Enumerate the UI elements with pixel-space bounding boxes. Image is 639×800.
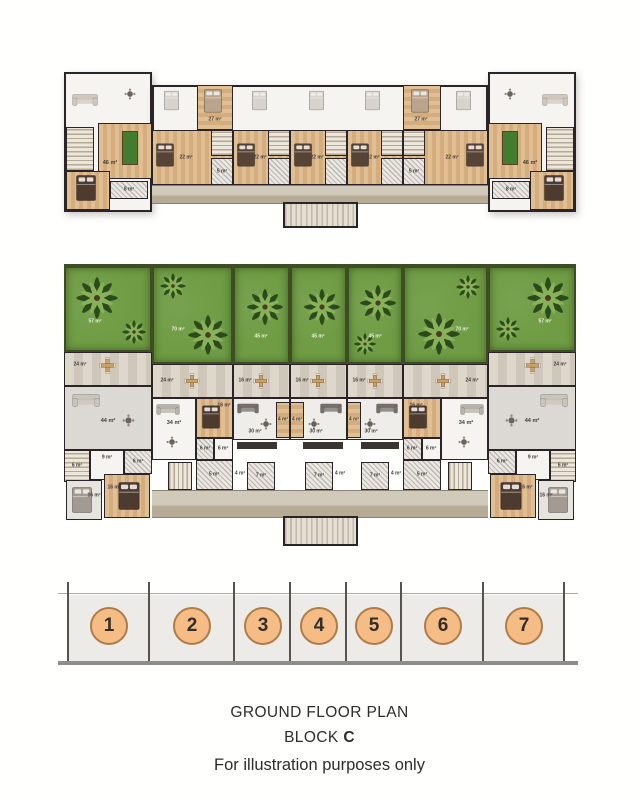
bed-icon: [204, 89, 222, 113]
kitchen-counter: [237, 442, 277, 449]
stairs-icon: [381, 130, 403, 156]
unit-number-badge-7: 7: [505, 607, 543, 645]
garden-7: [488, 264, 576, 352]
stairs-area-label: 6 m²: [72, 464, 82, 469]
room-area-label: 22 m²: [179, 156, 192, 161]
deck-area-label: 4 m²: [278, 418, 288, 423]
garden-area-label: 57 m²: [88, 320, 101, 325]
terrace-area-label: 16 m²: [295, 379, 308, 384]
bedroom-area-label: 16 m²: [107, 486, 120, 491]
dining-table-icon: [458, 436, 470, 448]
stairs-icon: [325, 130, 347, 156]
palm-tree-icon: [455, 274, 481, 300]
bath-area-label: 7 m²: [256, 474, 266, 479]
key-divider: [289, 582, 291, 661]
sofa-icon: [237, 403, 259, 414]
outdoor-table-icon: [99, 357, 116, 374]
wc-area-label: 6 m²: [200, 447, 210, 452]
upper-entrance-stairs: [283, 202, 358, 228]
palm-tree-icon: [186, 313, 230, 357]
dining-table-icon: [505, 414, 518, 427]
bed-icon: [466, 142, 484, 168]
palm-tree-icon: [495, 316, 521, 342]
kitchen-counter: [303, 442, 343, 449]
terrace-area-label: 16 m²: [352, 379, 365, 384]
key-divider: [563, 582, 565, 661]
bedroom-area-label: 16 m²: [519, 486, 532, 491]
floor-plan-sheet: 46 m² 8 m² 27 m² 22 m² 5 m² 22 m² 22 m²: [0, 0, 639, 800]
bed-icon: [156, 142, 174, 168]
sofa-icon: [156, 404, 180, 415]
terrace-area-label: 24 m²: [73, 363, 86, 368]
garden-area-label: 70 m²: [455, 328, 468, 333]
bed-icon: [365, 90, 380, 111]
deck-area-label: 4 m²: [292, 418, 302, 423]
living-area-label: 30 m²: [248, 430, 261, 435]
terrace-area-label: 24 m²: [465, 379, 478, 384]
bed-icon: [252, 90, 267, 111]
hall-area-label: 9 m²: [102, 456, 112, 461]
key-divider: [67, 582, 69, 661]
living-area-label: 34 m²: [167, 421, 182, 427]
outdoor-table-icon: [435, 373, 451, 389]
hall-area-label: 4 m²: [391, 472, 401, 477]
bath-area-label: 5 m²: [209, 473, 219, 478]
stairs-icon: [66, 127, 94, 171]
key-divider: [400, 582, 402, 661]
upper-floor-plan: 46 m² 8 m² 27 m² 22 m² 5 m² 22 m² 22 m²: [64, 12, 576, 230]
outdoor-table-icon: [253, 373, 269, 389]
unit-number-badge-6: 6: [424, 607, 462, 645]
upper-bath-3: [268, 158, 290, 185]
bedroom-area-label: 16 m²: [87, 494, 100, 499]
pool-table: [502, 131, 518, 165]
bath-area-label: 7 m²: [370, 474, 380, 479]
room-area-label: 27 m²: [208, 118, 221, 123]
unit-number-badge-2: 2: [173, 607, 211, 645]
sofa-icon: [542, 94, 568, 106]
bed-icon: [309, 90, 324, 111]
block-label: BLOCK C: [0, 729, 639, 747]
ground-floor-plan: 57 m² 70 m² 45 m² 45 m² 45 m² 70 m² 57 m: [64, 264, 576, 546]
room-area-label: 22 m²: [310, 156, 323, 161]
stairs-icon: [268, 130, 290, 156]
room-area-label: 46 m²: [103, 161, 118, 167]
ground-corridor: [152, 490, 488, 518]
room-area-label: 22 m²: [253, 156, 266, 161]
garden-5: [347, 264, 403, 364]
bedroom-area-label: 16 m²: [217, 404, 230, 409]
garden-4: [290, 264, 347, 364]
palm-tree-icon: [416, 311, 462, 357]
outdoor-table-icon: [367, 373, 383, 389]
disclaimer-text: For illustration purposes only: [0, 756, 639, 775]
living-area-label: 34 m²: [459, 421, 474, 427]
stairs-icon: [168, 462, 192, 490]
room-area-label: 8 m²: [124, 188, 134, 193]
garden-1: [64, 264, 152, 352]
key-bottom-line: [58, 661, 578, 665]
upper-bath-5: [381, 158, 403, 185]
bedroom-area-label: 16 m²: [539, 494, 552, 499]
bed-icon: [237, 142, 255, 168]
palm-tree-icon: [358, 283, 398, 323]
terrace-area-label: 24 m²: [160, 379, 173, 384]
bed-icon: [548, 486, 568, 514]
stairs-icon: [211, 130, 233, 156]
bath-area-label: 5 m²: [417, 473, 427, 478]
dining-table-icon: [504, 88, 516, 100]
living-area-label: 30 m²: [364, 430, 377, 435]
hall-area-label: 6 m²: [426, 447, 436, 452]
dining-table-icon: [260, 418, 272, 430]
unit-number-badge-5: 5: [355, 607, 393, 645]
room-area-label: 8 m²: [506, 188, 516, 193]
key-divider: [233, 582, 235, 661]
palm-tree-icon: [525, 275, 571, 321]
hall-area-label: 9 m²: [528, 456, 538, 461]
dining-table-icon: [166, 436, 178, 448]
upper-bath-4: [325, 158, 347, 185]
key-divider: [148, 582, 150, 661]
room-area-label: 5 m²: [217, 170, 227, 175]
garden-area-label: 45 m²: [311, 335, 324, 340]
palm-tree-icon: [159, 272, 187, 300]
wc-area-label: 6 m²: [407, 447, 417, 452]
sofa-icon: [72, 94, 98, 106]
room-area-label: 46 m²: [523, 161, 538, 167]
terrace-area-label: 24 m²: [553, 363, 566, 368]
deck-area-label: 4 m²: [349, 418, 359, 423]
dining-table-icon: [122, 414, 135, 427]
garden-3: [233, 264, 290, 364]
unit-number-badge-3: 3: [244, 607, 282, 645]
hall-area-label: 4 m²: [335, 472, 345, 477]
dining-table-icon: [124, 88, 136, 100]
room-area-label: 22 m²: [366, 156, 379, 161]
ground-entrance-stairs: [283, 516, 358, 546]
garden-2: [152, 264, 233, 364]
stairs-icon: [448, 462, 472, 490]
key-divider: [345, 582, 347, 661]
bed-icon: [294, 142, 312, 168]
terrace-area-label: 16 m²: [238, 379, 251, 384]
living-area-label: 44 m²: [525, 419, 540, 425]
bed-icon: [72, 486, 92, 514]
bed-icon: [544, 175, 564, 201]
hall-area-label: 4 m²: [235, 472, 245, 477]
bath-area-label: 7 m²: [314, 474, 324, 479]
block-letter: C: [343, 729, 355, 746]
garden-area-label: 57 m²: [538, 320, 551, 325]
bath-area-label: 6 m²: [133, 460, 143, 465]
bedroom-area-label: 16 m²: [409, 404, 422, 409]
room-area-label: 27 m²: [414, 118, 427, 123]
unit-key-strip: 1 2 3 4 5 6 7: [58, 582, 578, 668]
palm-tree-icon: [74, 275, 120, 321]
living-area-label: 44 m²: [101, 419, 116, 425]
sofa-icon: [72, 394, 100, 407]
bed-icon: [118, 482, 140, 510]
garden-area-label: 45 m²: [254, 335, 267, 340]
bed-icon: [411, 89, 429, 113]
stairs-area-label: 6 m²: [558, 464, 568, 469]
block-word: BLOCK: [284, 729, 339, 746]
bed-icon: [456, 90, 471, 111]
plan-title: GROUND FLOOR PLAN: [0, 704, 639, 722]
stairs-icon: [546, 127, 574, 171]
palm-tree-icon: [121, 319, 147, 345]
unit-number-badge-1: 1: [90, 607, 128, 645]
palm-tree-icon: [245, 287, 285, 327]
kitchen-counter: [361, 442, 399, 449]
room-area-label: 22 m²: [445, 156, 458, 161]
unit-number-badge-4: 4: [300, 607, 338, 645]
stairs-icon: [403, 130, 425, 156]
bed-icon: [164, 90, 179, 111]
sofa-icon: [376, 403, 398, 414]
bed-icon: [76, 175, 96, 201]
room-area-label: 5 m²: [409, 170, 419, 175]
garden-area-label: 45 m²: [368, 335, 381, 340]
outdoor-table-icon: [524, 357, 541, 374]
outdoor-table-icon: [184, 373, 200, 389]
sofa-icon: [460, 404, 484, 415]
pool-table: [122, 131, 138, 165]
key-divider: [482, 582, 484, 661]
sofa-icon: [540, 394, 568, 407]
bath-area-label: 6 m²: [497, 460, 507, 465]
garden-area-label: 70 m²: [171, 328, 184, 333]
garden-6: [403, 264, 488, 364]
sofa-icon: [320, 403, 342, 414]
outdoor-table-icon: [310, 373, 326, 389]
palm-tree-icon: [302, 287, 342, 327]
hall-area-label: 6 m²: [218, 447, 228, 452]
living-area-label: 30 m²: [309, 430, 322, 435]
